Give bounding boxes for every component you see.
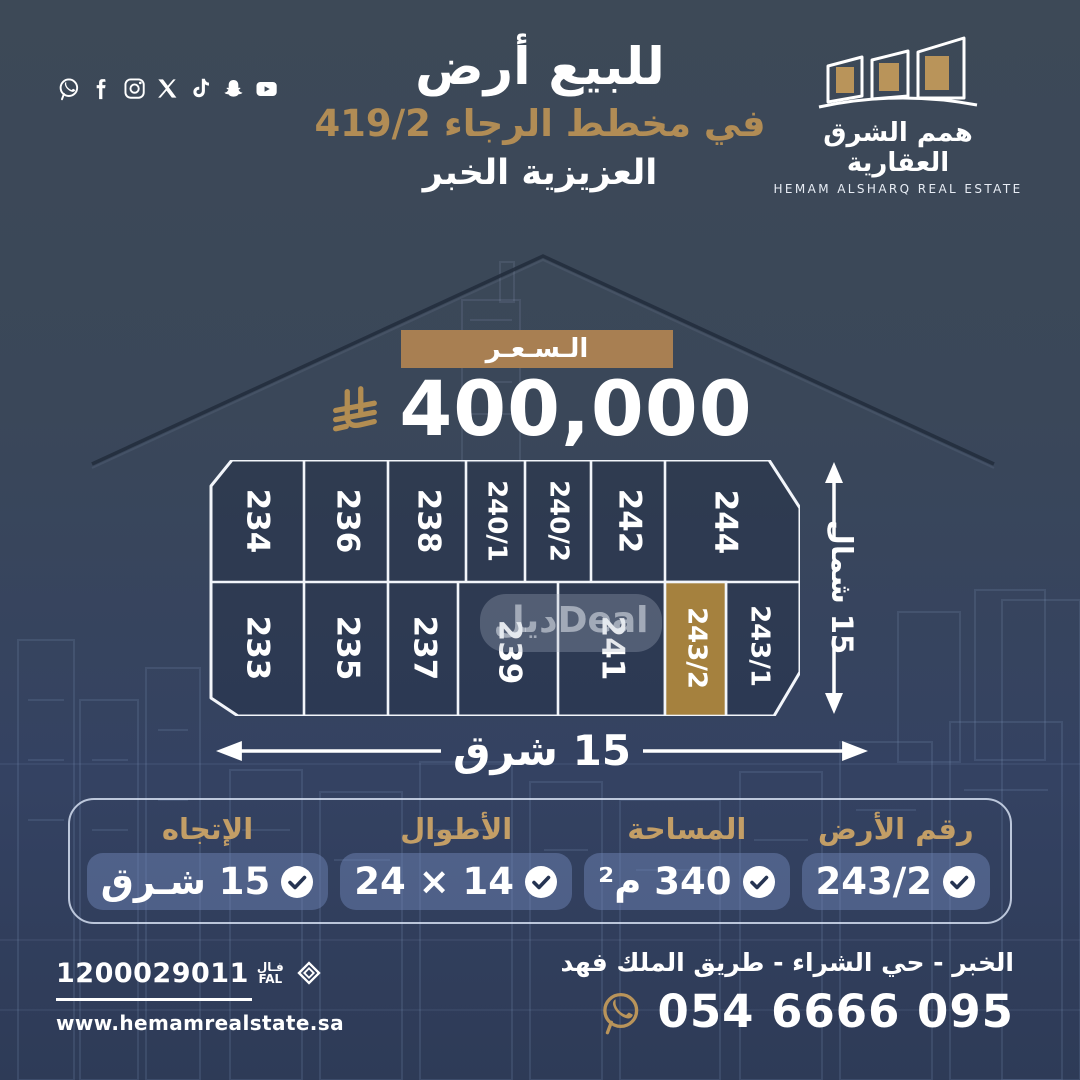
detail-value: 340 م² xyxy=(598,860,731,903)
youtube-icon[interactable] xyxy=(254,76,279,101)
fal-diamond-icon xyxy=(292,956,326,990)
address-text: الخبر - حي الشراء - طريق الملك فهد xyxy=(560,948,1014,977)
tiktok-icon[interactable] xyxy=(188,76,213,101)
check-icon xyxy=(280,865,314,899)
page-title: للبيع أرض xyxy=(290,40,790,96)
price-banner: الـسـعـر xyxy=(401,330,673,368)
footer-contact-block: الخبر - حي الشراء - طريق الملك فهد 054 6… xyxy=(560,948,1014,1038)
instagram-icon[interactable] xyxy=(122,76,147,101)
fal-wordmark: فـال FAL xyxy=(257,961,284,985)
check-icon xyxy=(524,865,558,899)
social-icons xyxy=(56,76,279,101)
price-row: 400,000 xyxy=(0,364,1080,453)
plot-label: 243/1 xyxy=(745,605,775,687)
phone-number[interactable]: 054 6666 095 xyxy=(658,985,1014,1038)
facebook-icon[interactable] xyxy=(89,76,114,101)
east-arrowhead xyxy=(643,738,872,764)
flyer-canvas: للبيع أرض في مخطط الرجاء 419/2 العزيزية … xyxy=(0,0,1080,1080)
plot-label: 242 xyxy=(612,489,648,554)
detail-label: رقم الأرض xyxy=(818,812,974,846)
detail-card-plot-number: رقم الأرض 243/2 xyxy=(796,810,997,912)
company-name-english: HEMAM ALSHARQ REAL ESTATE xyxy=(768,182,1028,196)
footer-license-block: 1200029011 فـال FAL www.hemamrealstate.s… xyxy=(56,956,344,1035)
deal-watermark: ديلDeal xyxy=(480,594,662,652)
plot-label: 244 xyxy=(708,490,744,555)
detail-card-direction: الإتجاه 15 شـرق xyxy=(81,810,335,912)
plot-label: 235 xyxy=(330,616,366,681)
divider-line xyxy=(56,998,252,1001)
plot-label: 238 xyxy=(411,489,447,554)
snapchat-icon[interactable] xyxy=(221,76,246,101)
plot-label: 234 xyxy=(240,489,276,554)
company-name-arabic: همم الشرق العقارية xyxy=(768,118,1028,178)
price-amount: 400,000 xyxy=(399,364,752,453)
company-logo: همم الشرق العقارية HEMAM ALSHARQ REAL ES… xyxy=(768,36,1028,196)
detail-card-area: المساحة 340 م² xyxy=(578,810,795,912)
fal-license-number: 1200029011 xyxy=(56,958,249,989)
plot-label: 233 xyxy=(240,616,276,681)
plot-label: 236 xyxy=(330,489,366,554)
details-panel: رقم الأرض 243/2 المساحة 340 م² الأطوال 1… xyxy=(68,798,1012,924)
detail-label: المساحة xyxy=(627,812,746,846)
saudi-riyal-icon xyxy=(327,381,381,437)
check-icon xyxy=(942,865,976,899)
svg-text:ديلDeal: ديلDeal xyxy=(493,600,648,641)
whatsapp-icon[interactable] xyxy=(56,76,81,101)
plot-map: 234 236 238 240/1 240/2 242 244 233 235 … xyxy=(208,460,800,716)
buildings-logo-icon xyxy=(814,36,982,116)
detail-label: الأطوال xyxy=(400,812,512,846)
north-direction-arrow: 15 شمال xyxy=(806,458,862,718)
plot-label-highlighted: 243/2 xyxy=(682,607,712,689)
title-block: للبيع أرض في مخطط الرجاء 419/2 العزيزية … xyxy=(290,40,790,193)
north-label: 15 شمال xyxy=(825,520,859,654)
detail-pill: 14 × 24 xyxy=(340,853,572,910)
x-twitter-icon[interactable] xyxy=(155,76,180,101)
subtitle-plan: في مخطط الرجاء 419/2 xyxy=(290,102,790,145)
detail-label: الإتجاه xyxy=(162,812,253,846)
detail-value: 15 شـرق xyxy=(101,860,271,903)
detail-pill: 340 م² xyxy=(584,853,789,910)
detail-pill: 243/2 xyxy=(802,853,991,910)
detail-pill: 15 شـرق xyxy=(87,853,329,910)
detail-value: 243/2 xyxy=(816,860,933,903)
plot-label: 237 xyxy=(407,616,443,681)
east-label: 15 شرق xyxy=(453,726,631,775)
subtitle-location: العزيزية الخبر xyxy=(290,153,790,193)
price-label: الـسـعـر xyxy=(486,334,589,364)
whatsapp-gold-icon[interactable] xyxy=(596,988,644,1036)
detail-value: 14 × 24 xyxy=(354,860,514,903)
check-icon xyxy=(742,865,776,899)
plot-label: 240/1 xyxy=(482,480,512,562)
west-arrowhead xyxy=(212,738,441,764)
plot-label: 240/2 xyxy=(544,480,574,562)
detail-card-dimensions: الأطوال 14 × 24 xyxy=(334,810,578,912)
fal-english: FAL xyxy=(257,973,284,985)
east-direction-arrow: 15 شرق xyxy=(212,726,872,775)
website-link[interactable]: www.hemamrealstate.sa xyxy=(56,1011,344,1035)
